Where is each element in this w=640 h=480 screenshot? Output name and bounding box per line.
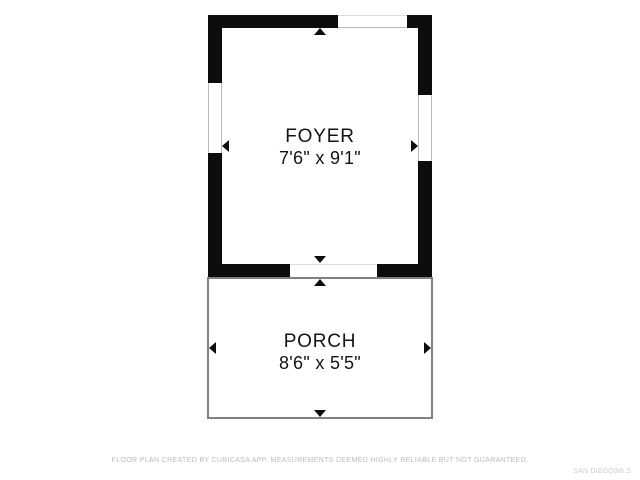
foyer-wall-bottom-left — [208, 264, 290, 278]
foyer-wall-right-upper — [418, 15, 432, 95]
foyer-wall-left-lower — [208, 153, 222, 278]
porch-arrow-up-icon — [314, 279, 326, 286]
foyer-wall-bottom-right — [377, 264, 432, 278]
foyer-label: FOYER 7'6" x 9'1" — [208, 126, 432, 169]
foyer-arrow-down-icon — [314, 256, 326, 263]
foyer-door-opening — [290, 264, 377, 277]
foyer-wall-top-left — [208, 15, 338, 28]
foyer-wall-right-lower — [418, 161, 432, 278]
footer-disclaimer: FLOOR PLAN CREATED BY CUBICASA APP. MEAS… — [0, 457, 640, 464]
foyer-wall-left-upper — [208, 15, 222, 83]
floor-plan-canvas: FOYER 7'6" x 9'1" PORCH 8'6" x 5'5" FLOO… — [0, 0, 640, 480]
porch-room-name: PORCH — [208, 331, 432, 353]
foyer-room-dimensions: 7'6" x 9'1" — [208, 148, 432, 169]
mls-watermark: SAN DIEGO|MLS — [573, 468, 631, 475]
foyer-arrow-up-icon — [314, 28, 326, 35]
foyer-room-name: FOYER — [208, 126, 432, 148]
porch-room-dimensions: 8'6" x 5'5" — [208, 353, 432, 374]
porch-label: PORCH 8'6" x 5'5" — [208, 331, 432, 374]
foyer-window-top — [338, 15, 407, 28]
porch-arrow-down-icon — [314, 410, 326, 417]
